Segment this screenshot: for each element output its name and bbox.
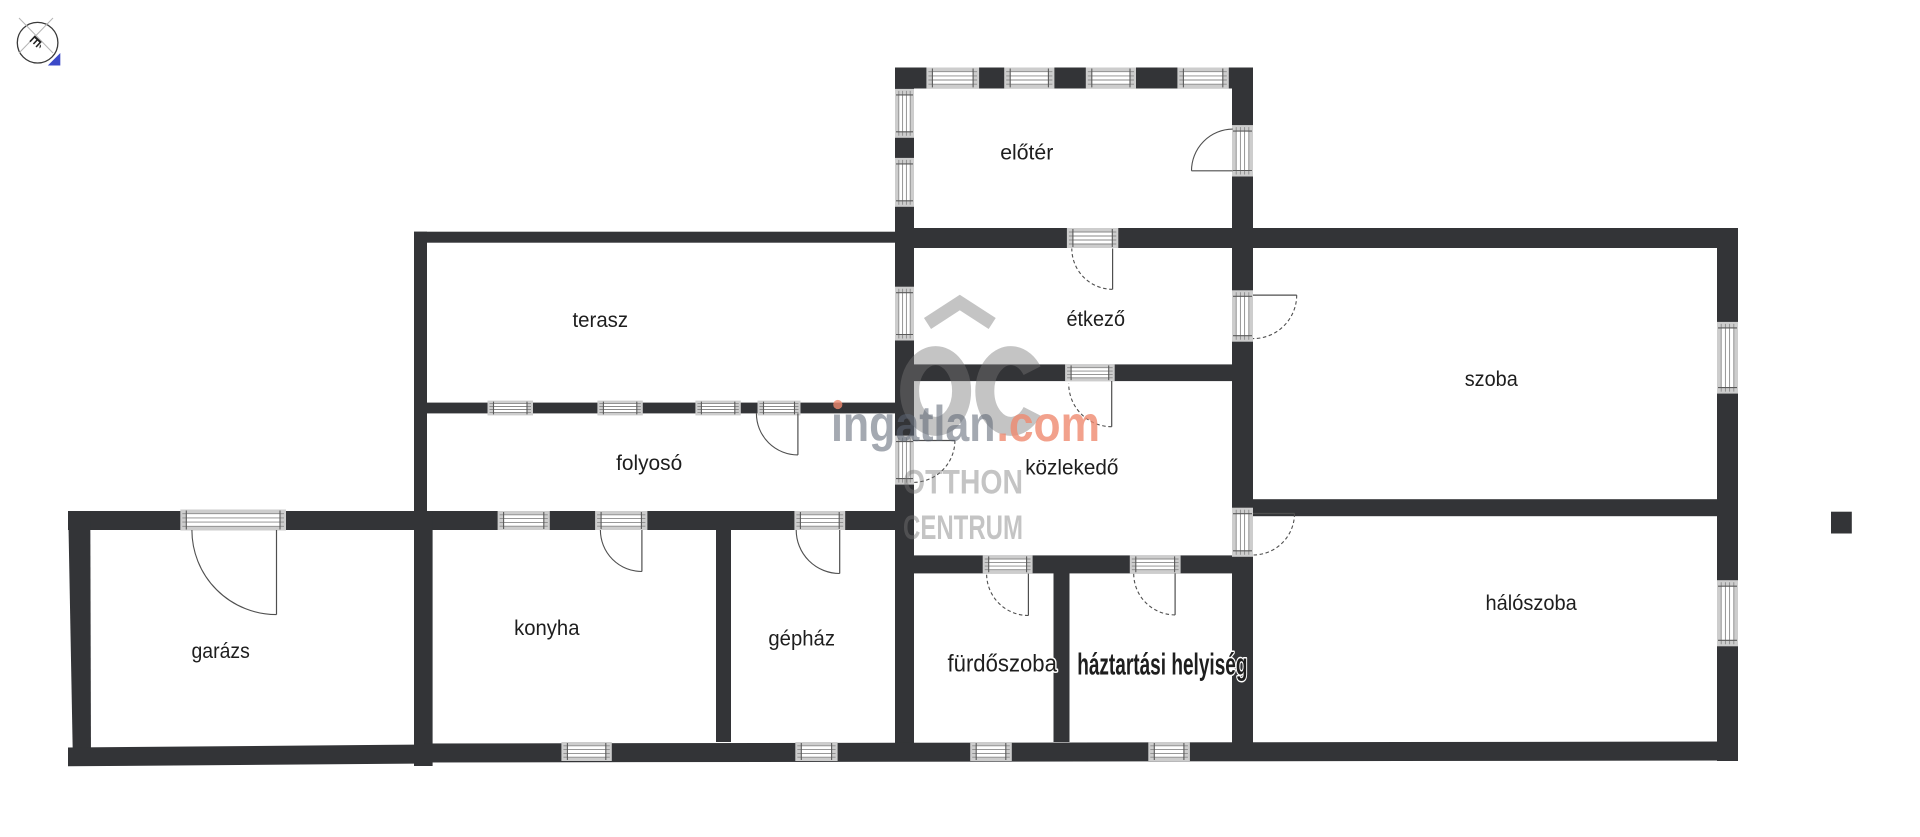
svg-text:fürdőszoba: fürdőszoba [948,650,1058,677]
svg-text:háztartási helyiség: háztartási helyiség [1077,646,1247,681]
svg-text:hálószoba: hálószoba [1486,591,1577,615]
svg-text:folyosó: folyosó [616,451,682,475]
svg-text:.com: .com [997,396,1101,452]
svg-text:garázs: garázs [192,639,250,663]
svg-text:OTTHON: OTTHON [903,464,1023,502]
svg-text:étkező: étkező [1067,307,1126,331]
svg-text:CENTRUM: CENTRUM [903,509,1023,547]
svg-text:konyha: konyha [514,616,579,640]
svg-text:terasz: terasz [573,308,629,332]
svg-text:ıngatlan: ıngatlan [831,396,996,452]
svg-text:gépház: gépház [768,626,835,650]
svg-text:szoba: szoba [1465,367,1518,391]
svg-text:előtér: előtér [1000,140,1053,164]
svg-text:közlekedő: közlekedő [1025,456,1118,480]
